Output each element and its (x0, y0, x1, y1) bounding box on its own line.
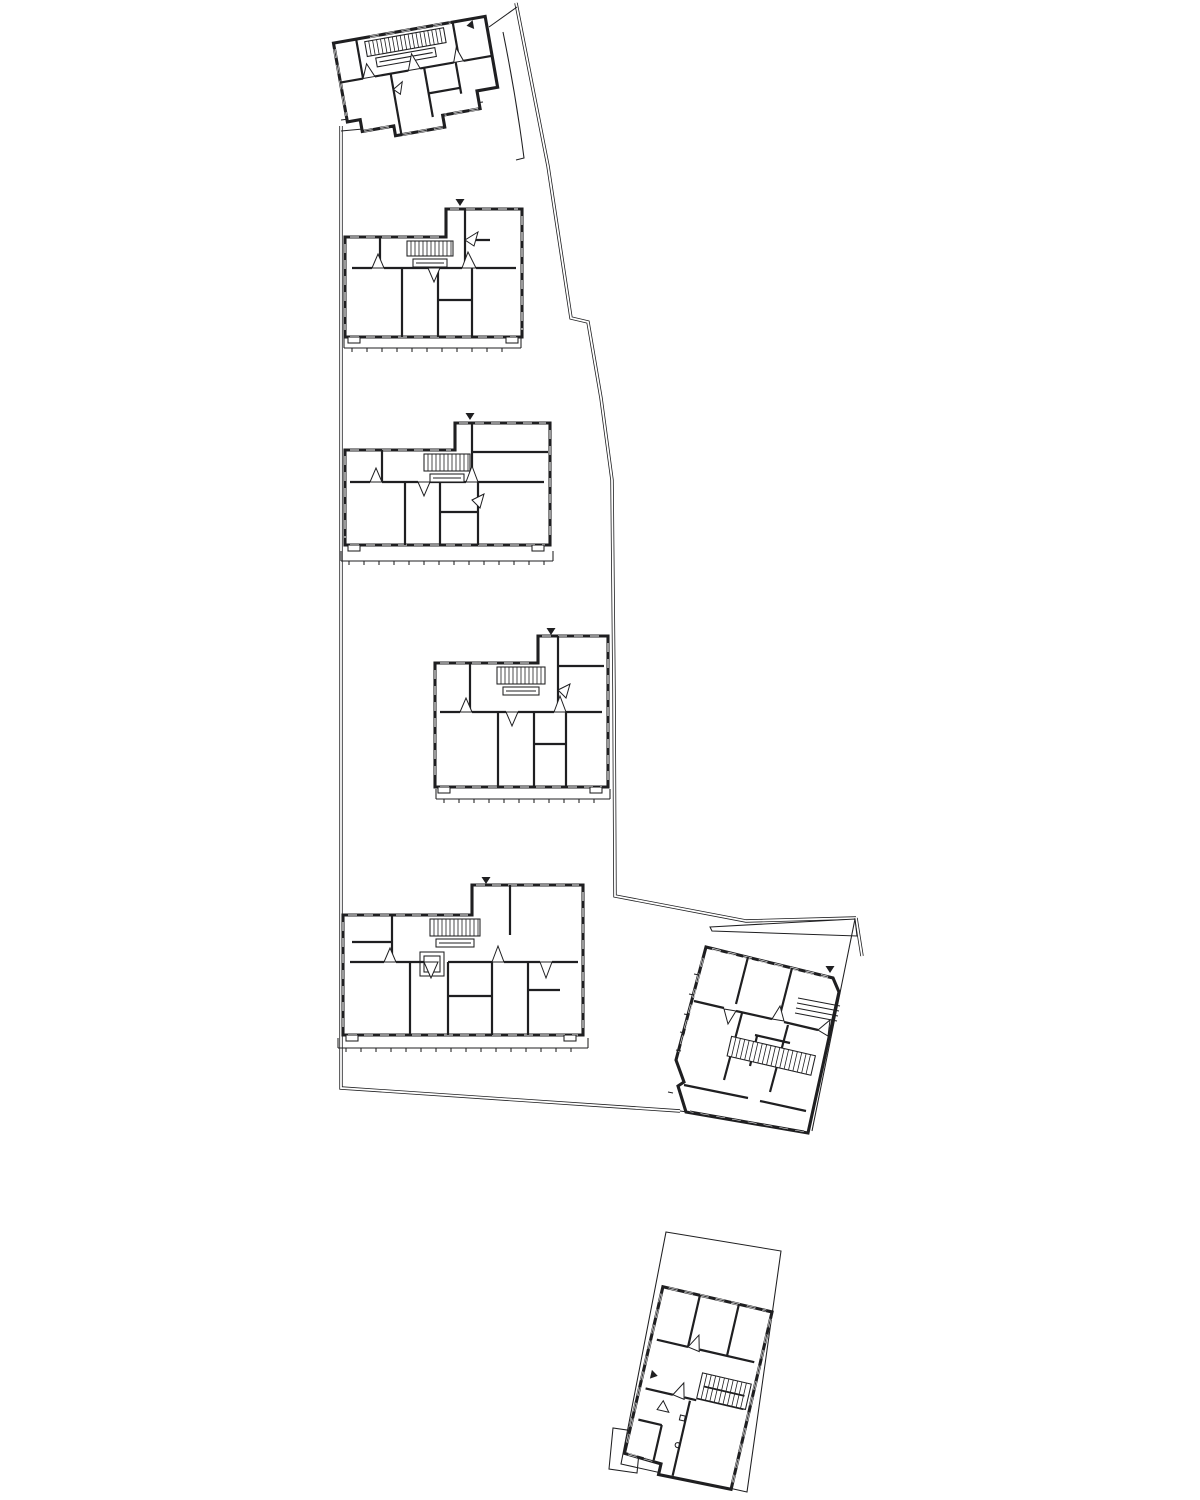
entrance-marker-icon (456, 199, 465, 206)
site-plan-canvas (0, 0, 1200, 1500)
building-block-1 (333, 16, 502, 143)
building-block-5-outer-wall (343, 885, 583, 1035)
building-block-3-outer-wall (345, 423, 550, 545)
boundary-detail-line (489, 7, 517, 27)
stair-flight (424, 454, 470, 471)
boundary-detail-line (503, 32, 524, 160)
balcony-step (590, 787, 602, 793)
building-block-6 (668, 947, 840, 1133)
balcony-step (532, 545, 544, 551)
stair-flight (430, 919, 480, 936)
balcony-step (438, 787, 450, 793)
entrance-marker-icon (547, 628, 556, 635)
entrance-marker-icon (466, 413, 475, 420)
balcony-step (348, 545, 360, 551)
balcony-step (348, 337, 360, 343)
balcony-step (564, 1035, 576, 1041)
drawing-sheet (0, 0, 1200, 1500)
building-block-4 (435, 628, 608, 793)
building-block-2 (345, 199, 522, 343)
site-boundary-gap (856, 918, 862, 956)
building-block-6-outer-wall (676, 947, 839, 1133)
entrance-marker-icon (826, 966, 835, 973)
entrance-marker-icon (482, 877, 491, 884)
detail-line (668, 1092, 673, 1093)
balcony-step (346, 1035, 358, 1041)
stair-flight (407, 241, 453, 256)
building-block-3 (345, 413, 550, 551)
building-block-7 (622, 1287, 773, 1491)
building-block-5 (343, 877, 583, 1041)
balcony-step (506, 337, 518, 343)
